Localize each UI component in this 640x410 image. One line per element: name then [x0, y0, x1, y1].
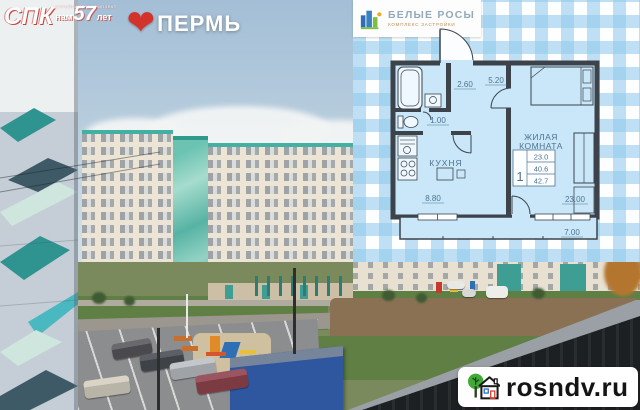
- entrance-block: [560, 264, 586, 291]
- car-white: [462, 289, 476, 297]
- car-white: [447, 281, 465, 289]
- tree: [532, 288, 545, 299]
- hall-dim-label: 5.20: [488, 76, 504, 85]
- tree: [124, 296, 135, 306]
- lamp-pole: [293, 268, 296, 354]
- entrance-opening: [440, 60, 473, 66]
- balcony-dim-label: 7.00: [564, 228, 580, 237]
- years-number: 57: [73, 3, 95, 25]
- bench: [182, 346, 198, 351]
- watermark-site: rosndv.ru: [506, 372, 628, 403]
- house-tree-icon: [466, 371, 500, 403]
- flag-pole: [186, 294, 188, 338]
- playground-bench: [206, 352, 226, 356]
- spec-rooms: 1: [516, 169, 523, 184]
- developer-years: нам57лет: [55, 9, 116, 22]
- years-prefix: нам: [55, 12, 72, 22]
- developer-logo: СПК СТРОЙПАНЕЛЬКОМПЛЕКТ нам57лет: [4, 4, 117, 30]
- listing-photo: БЕЛЫЕ РОСЫ КОМПЛЕКС ЗАСТРОЙКИ: [0, 0, 640, 410]
- living-label-2: КОМНАТА: [519, 141, 563, 151]
- stove: [398, 158, 417, 180]
- walkway: [78, 300, 348, 306]
- playground-bars: [240, 350, 256, 354]
- developer-mark: СПК: [4, 4, 53, 30]
- van-white: [486, 286, 508, 298]
- apartment-outline: [393, 63, 597, 217]
- tree: [92, 292, 106, 304]
- playground-item: [436, 282, 442, 293]
- city-label: ПЕРМЬ: [157, 11, 241, 37]
- site-watermark: rosndv.ru: [458, 367, 638, 407]
- brand-header: СПК СТРОЙПАНЕЛЬКОМПЛЕКТ нам57лет ❤ ПЕРМЬ: [4, 4, 234, 48]
- balcony-door-opening: [512, 214, 530, 220]
- spec-living-area: 23.0: [534, 153, 549, 162]
- spec-area: 40.6: [534, 165, 549, 174]
- sink: [425, 94, 441, 107]
- entrance-door-arc: [440, 29, 473, 62]
- toilet: [404, 117, 418, 128]
- tree: [382, 290, 395, 301]
- tree: [416, 293, 427, 303]
- lamp-pole: [157, 328, 160, 410]
- spec-total-area: 42.7: [534, 177, 549, 186]
- floorplan-panel: БЕЛЫЕ РОСЫ КОМПЛЕКС ЗАСТРОЙКИ: [353, 0, 640, 262]
- years-suffix: лет: [97, 12, 112, 22]
- kitchen-label: КУХНЯ: [429, 158, 462, 168]
- bath-dim-label: 2.60: [457, 80, 473, 89]
- living-window: [535, 214, 590, 220]
- entrance-door: [225, 285, 233, 299]
- bench: [174, 336, 192, 341]
- spec-table: 1 23.0 40.6 42.7: [513, 150, 555, 186]
- living-dim-label: 23.00: [565, 195, 586, 204]
- kitchen-area-label: 8.80: [425, 194, 441, 203]
- wc-dim-label: 1.00: [430, 116, 446, 125]
- kitchen-sink-unit: [398, 136, 417, 156]
- floorplan-drawing: 2.60 5.20 1.00 КУХНЯ 8.80 ЖИЛАЯ КОМНАТА …: [353, 0, 640, 262]
- heart-icon: ❤: [127, 6, 156, 40]
- sports-fence-posts: [255, 276, 345, 296]
